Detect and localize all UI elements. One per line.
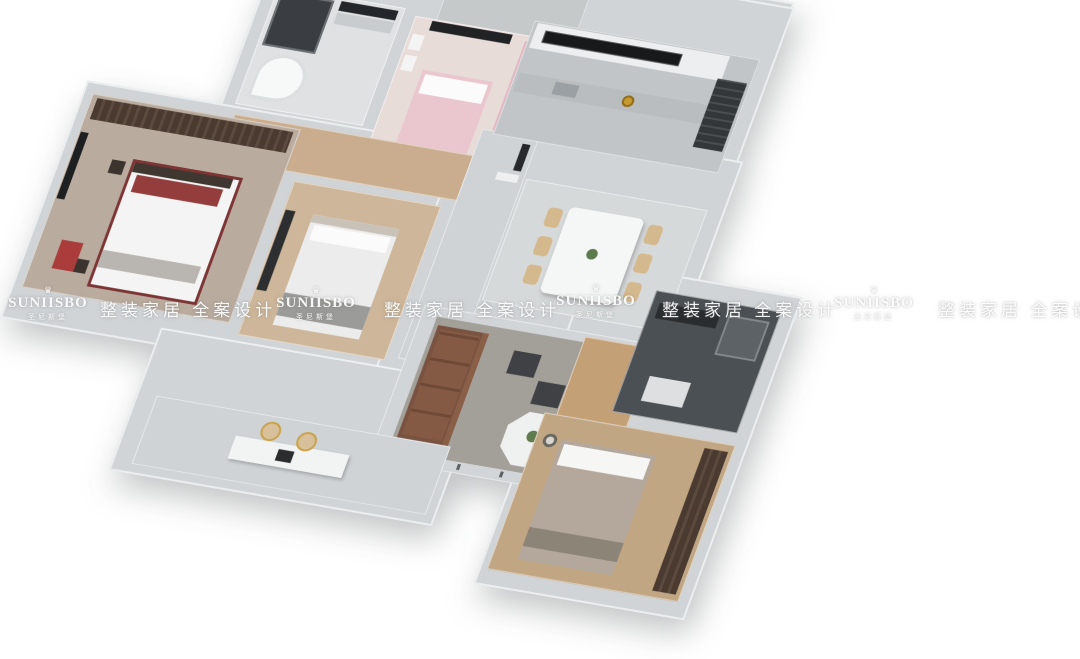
brand-latin-text: SUNIISBO [550, 294, 642, 310]
shower-enclosure [262, 0, 335, 54]
brand-watermark: ♛ SUNIISBO 圣尼斯堡 [828, 286, 920, 321]
bathtub [246, 50, 314, 106]
shower-tray [714, 315, 770, 362]
brand-chinese-text: 圣尼斯堡 [2, 314, 94, 321]
brand-chinese-text: 圣尼斯堡 [828, 314, 920, 321]
dining-chair [543, 207, 565, 229]
brand-watermark: ♛ SUNIISBO 圣尼斯堡 [2, 286, 94, 321]
bedroom3-bed [518, 439, 656, 575]
wall-art-frames [408, 34, 425, 51]
kitchen-counter [513, 72, 712, 124]
red-artwork [52, 240, 84, 272]
bath-mat [641, 376, 691, 408]
brand-chinese-text: 圣尼斯堡 [550, 312, 642, 319]
bedroom3-pillows [557, 444, 651, 480]
tagline-watermark: 整装家居 全案设计 [384, 296, 560, 321]
bedroom3-runner [523, 527, 624, 562]
nightstand [108, 159, 127, 175]
brand-chinese-text: 圣尼斯堡 [270, 314, 362, 321]
brand-watermark: ♛ SUNIISBO 圣尼斯堡 [550, 284, 642, 319]
brand-watermark: ♛ SUNIISBO 圣尼斯堡 [270, 286, 362, 321]
master-bed [87, 159, 244, 305]
entry-mirror [513, 144, 531, 172]
throw-blanket [97, 250, 201, 284]
apartment-floorplan [0, 0, 885, 659]
bedside-lamp [541, 433, 560, 449]
entry-console [495, 172, 519, 183]
dining-chair [642, 224, 664, 246]
tagline-watermark: 整装家居 全案设计 [662, 296, 838, 321]
render-canvas: ♛ SUNIISBO 圣尼斯堡 整装家居 全案设计 ♛ SUNIISBO 圣尼斯… [0, 0, 1080, 608]
brand-latin-text: SUNIISBO [828, 296, 920, 312]
brand-latin-text: SUNIISBO [2, 296, 94, 312]
kids-bed-pillows [418, 74, 488, 104]
brand-latin-text: SUNIISBO [270, 296, 362, 312]
tagline-watermark: 整装家居 全案设计 [938, 296, 1080, 321]
tagline-watermark: 整装家居 全案设计 [100, 296, 276, 321]
